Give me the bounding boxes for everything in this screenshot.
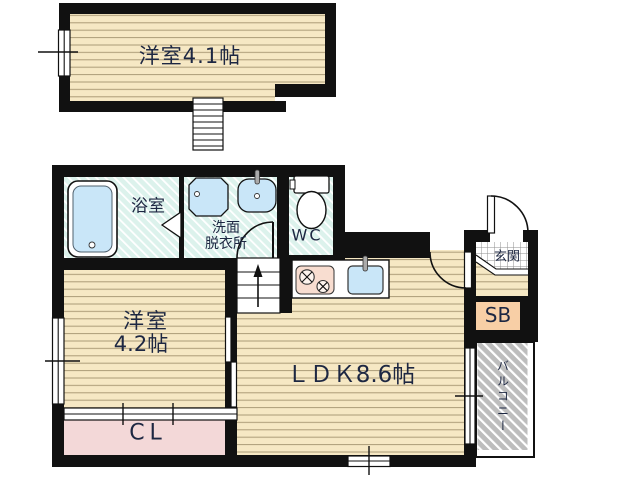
upper-bedroom-label: 洋室4.1帖	[139, 40, 241, 70]
wall-segment	[333, 165, 345, 262]
bathroom-label: 浴室	[131, 192, 165, 217]
wall-segment	[464, 330, 538, 342]
wall-segment	[52, 165, 64, 467]
washroom-label-line2: 脱衣所	[205, 233, 247, 253]
closet-label: CL	[129, 421, 167, 446]
bathtub-icon	[68, 181, 117, 257]
ldk-label: ＬＤＫ8.6帖	[287, 355, 416, 389]
wall-segment	[52, 258, 237, 270]
wall-segment	[476, 296, 528, 302]
wall-segment	[520, 302, 538, 330]
wall-segment	[59, 101, 286, 112]
upper-floor-plan	[38, 3, 336, 150]
floor-plan: 洋室4.1帖 浴室 洗面 脱衣所 WC 洋室 4.2帖 ＬＤＫ8.6帖 CL 玄…	[0, 0, 640, 480]
stove-icon	[296, 266, 334, 294]
wall-segment	[275, 84, 336, 97]
kitchen-counter	[292, 256, 389, 298]
washer-pan-icon	[189, 178, 228, 216]
wall-segment	[52, 165, 345, 177]
wall-segment	[59, 3, 336, 14]
stairs-lower-icon	[237, 258, 280, 313]
shoebox-label: SB	[485, 303, 511, 327]
entrance-label: 玄関	[494, 246, 520, 265]
wall-segment	[345, 232, 430, 258]
bedroom-label-line2: 4.2帖	[114, 328, 168, 358]
wall-segment	[280, 258, 292, 313]
balcony-label: バルコニー	[495, 360, 512, 435]
wc-label: WC	[292, 226, 323, 245]
wall-segment	[325, 3, 336, 97]
entry-door-icon	[488, 196, 529, 233]
stairs-upper-icon	[193, 98, 223, 150]
wall-segment	[277, 177, 289, 262]
wall-segment	[52, 455, 476, 467]
lower-floor-plan	[45, 165, 538, 475]
